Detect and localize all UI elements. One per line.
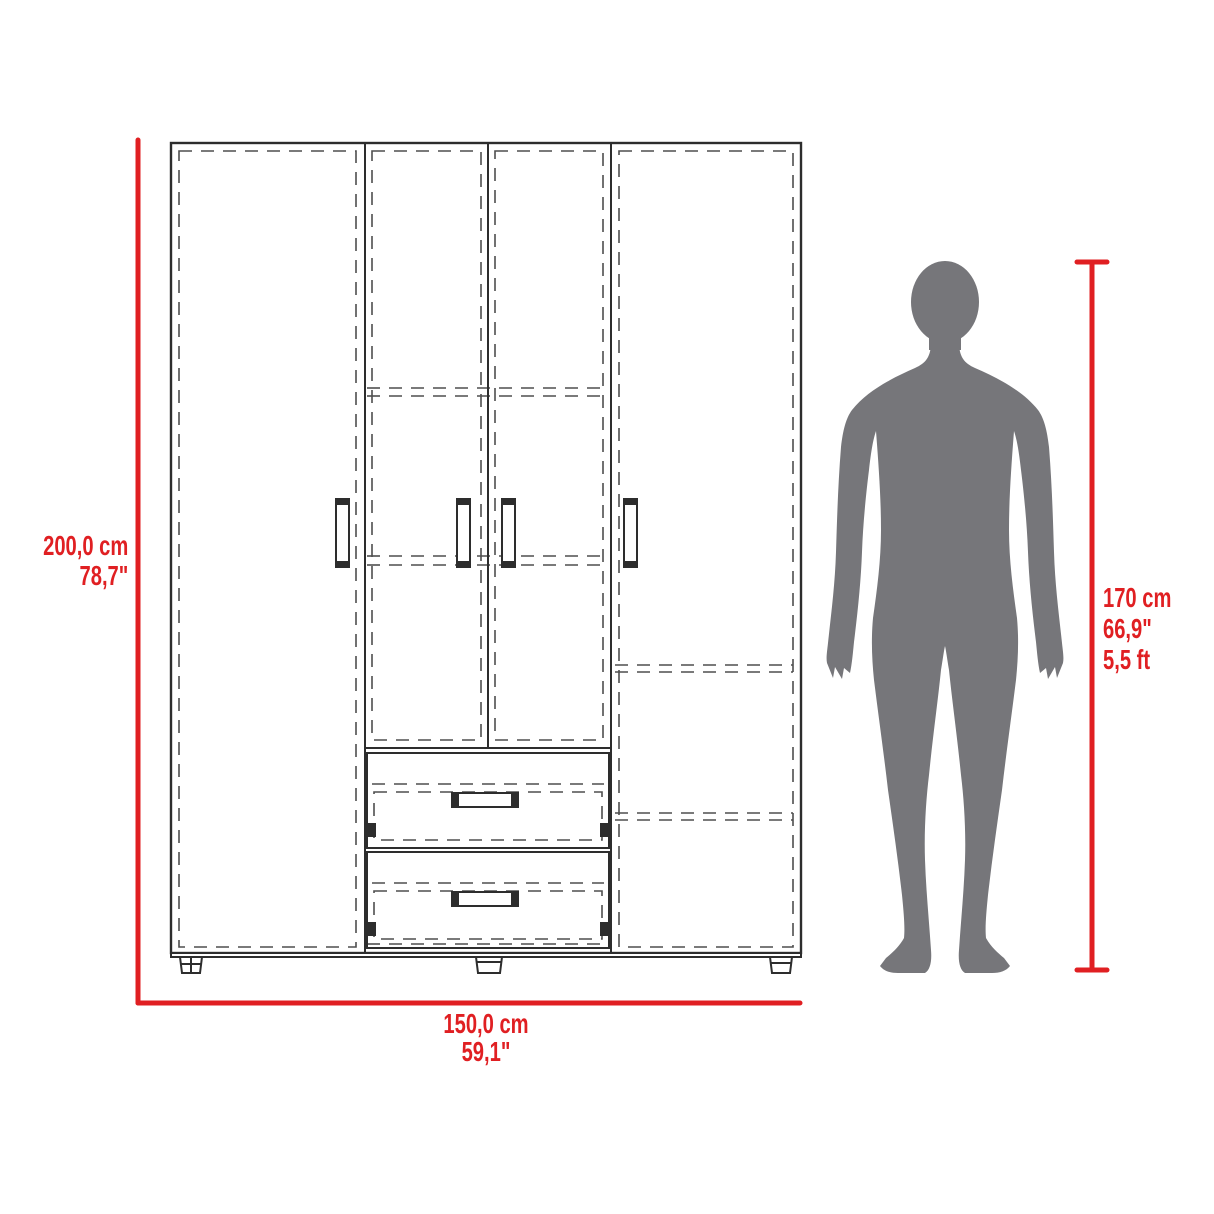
door-handle xyxy=(336,499,349,567)
width-dimension-label: 150,0 cm 59,1" xyxy=(414,1010,558,1066)
wardrobe-foot xyxy=(180,957,202,973)
height-cm-value: 200,0 cm xyxy=(43,531,128,561)
height-dimension-label: 200,0 cm 78,7" xyxy=(43,531,128,591)
width-inches-value: 59,1" xyxy=(414,1038,558,1066)
person-cm-value: 170 cm xyxy=(1103,582,1171,613)
left-door-inset xyxy=(179,151,356,947)
center-right-door-inset xyxy=(495,151,603,740)
shelf-lines xyxy=(367,388,793,944)
door-handle xyxy=(457,499,470,567)
wardrobe-feet xyxy=(180,957,792,973)
right-door-inset xyxy=(619,151,793,947)
width-cm-value: 150,0 cm xyxy=(414,1010,558,1038)
drawer-slide-mark xyxy=(368,823,376,837)
drawer-slide-mark xyxy=(600,823,608,837)
product-dimension-diagram: 200,0 cm 78,7" 150,0 cm 59,1" 170 cm 66,… xyxy=(0,0,1214,1214)
wardrobe-diagram-canvas xyxy=(0,0,1214,1214)
human-silhouette xyxy=(827,261,1064,973)
door-handle xyxy=(624,499,637,567)
center-left-door-inset xyxy=(372,151,481,740)
silhouette-body xyxy=(827,345,1064,973)
drawer-1 xyxy=(367,753,609,848)
person-feet-value: 5,5 ft xyxy=(1103,644,1171,675)
drawer-handle xyxy=(452,793,518,807)
drawer-handle xyxy=(452,892,518,906)
wardrobe-outline xyxy=(171,143,801,957)
drawer-slide-mark xyxy=(368,922,376,936)
person-inches-value: 66,9" xyxy=(1103,613,1171,644)
drawer-2 xyxy=(367,852,609,948)
wardrobe-foot xyxy=(770,957,792,973)
wardrobe-foot xyxy=(476,957,502,973)
door-inset-lines xyxy=(179,151,793,947)
wardrobe-body xyxy=(171,143,801,953)
person-height-dimension-label: 170 cm 66,9" 5,5 ft xyxy=(1103,582,1171,675)
drawer-slide-mark xyxy=(600,922,608,936)
door-handle xyxy=(502,499,515,567)
height-inches-value: 78,7" xyxy=(43,561,128,591)
